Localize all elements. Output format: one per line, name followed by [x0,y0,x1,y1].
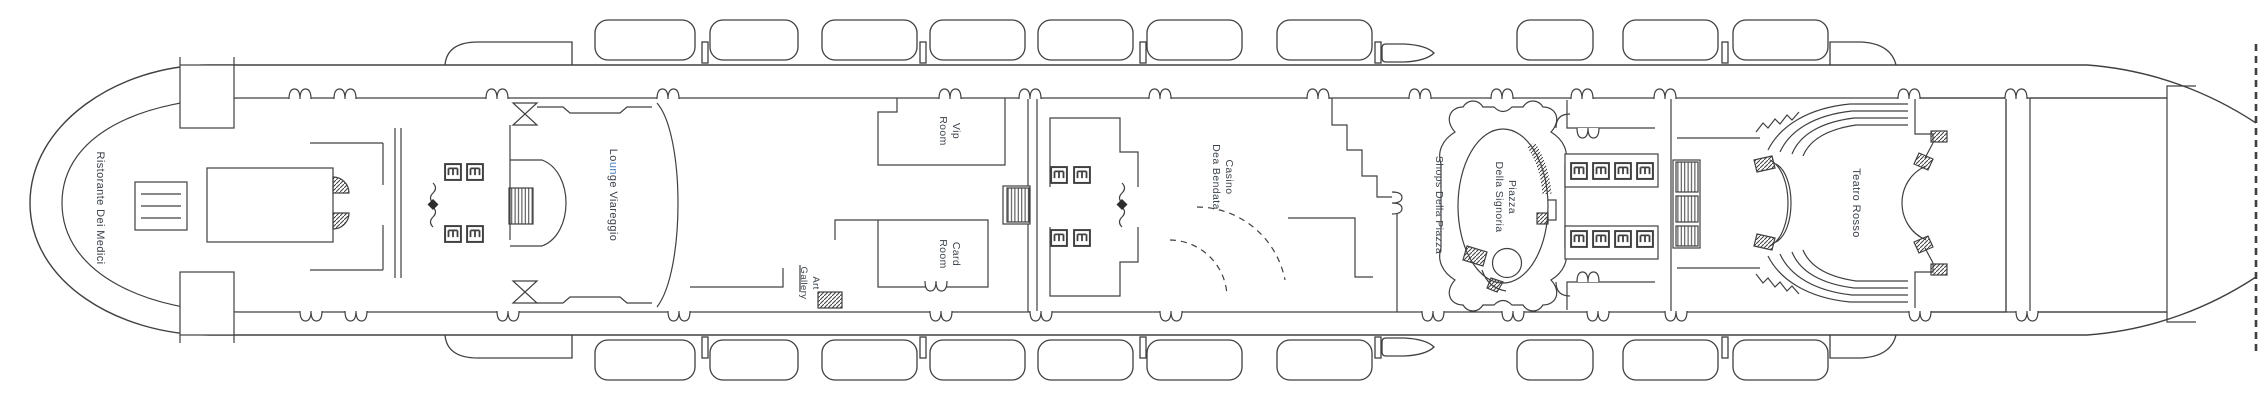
bow-curve-top [2087,65,2256,123]
elevator-icon [1637,231,1653,247]
label-casino-line2: Dea Bendata [1210,144,1222,210]
door-swing-arc [1556,114,1570,128]
balcony-front-arc [1770,160,1791,246]
elevator-icon [467,226,483,242]
lifeboat-icon [1517,20,1593,60]
lifeboat-icon [1038,340,1133,380]
forward-elevator-banks [1556,98,1671,312]
elevator-icon [1051,230,1067,246]
engine-casing-walls [395,128,401,278]
stage-apron-arc [1902,166,1926,240]
tender-boat-icon [1382,44,1434,62]
casino-dashed-arc [1197,207,1285,280]
elevator-icon [467,164,483,180]
rooms-vip-card [835,98,1037,312]
seating-tier-teeth-bottom [1756,274,1799,294]
stairs-hatch-icon [509,188,533,224]
tender-boat-icon [1382,338,1434,356]
theater-aisle-curves-bottom [1768,250,1908,302]
room-teatro-rosso [1673,98,1947,308]
door-swing-fan-icon [333,177,349,193]
davit-structure-aft-top [445,42,572,65]
room-labels: Ristorante Dei Medici Lounge Viareggio V… [94,116,1862,299]
hull-main [30,65,2087,335]
stairs-hatch-icon [1754,156,1775,172]
lifeboat-icon [930,340,1025,380]
door-swing-fan-icon [333,213,349,229]
elevator-icon [1571,231,1587,247]
lifeboat-icon [1623,20,1718,60]
stairs-hatch-icon [1676,196,1698,222]
fwd-room-top [1567,100,1655,128]
stairs-hatch-icon [1676,226,1698,246]
casino-stepped-wall [1332,98,1397,312]
stairs-hatch-icon [818,292,842,308]
stairs-hatch-icon [1676,162,1698,192]
art-gallery-walls [690,265,800,292]
card-room-walls [835,220,988,287]
stairs-hatch-icon [1007,188,1029,222]
elevator-icon [1615,163,1631,179]
lounge-bottom-wall [537,297,652,303]
elevator-icon [1593,163,1609,179]
lifeboat-icon [710,340,798,380]
elevator-icon [1615,231,1631,247]
label-lounge-viareggio: Lounge Viareggio [607,149,619,241]
bow-room-fwd [2030,98,2167,312]
label-piazza-line1: Piazza [1506,180,1518,214]
lifeboats-bottom-row [445,335,1896,380]
elevator-icon [1571,163,1587,179]
lifeboat-icon [930,20,1025,60]
restaurant-aft-walls [310,143,383,270]
elevator-icon [1051,167,1067,183]
lifeboat-icon [710,20,798,60]
stairs-hatch-icon [1931,264,1947,275]
room-ristorante-dei-medici [135,128,401,278]
davit-structure-fwd-top [1830,42,1896,65]
label-vip-room-line2: Room [937,116,949,146]
central-elevator-lobby [1050,118,1138,296]
bow-room-steps [2167,86,2196,322]
lifeboat-icon [595,20,695,60]
stairs-hatch-icon [1754,234,1775,250]
curtain-bowtie-icon [513,281,537,303]
stairs-hatch-icon [1537,213,1548,224]
curtain-bowtie-icon [513,103,537,125]
bow-curve-bottom [2087,277,2256,335]
lounge-curved-aft-wall [657,103,678,307]
lifeboat-icon [1733,20,1828,60]
bow-rooms [1915,86,2196,322]
stage-side-wall-bottom [1915,248,1933,308]
davit-structure-aft-bottom [445,335,572,358]
lifeboat-icon [822,340,917,380]
casino-dashed-arc [1170,240,1227,296]
room-casino-dea-bendata [1170,98,1397,312]
elevator-icon [1593,231,1609,247]
buffet-central-block [207,168,333,242]
watertight-door-diamond-icon [1117,183,1128,227]
elevator-icon [445,164,461,180]
buffet-side-counter-lines [141,194,181,218]
casino-bar-walls [1288,218,1373,277]
label-casino-line1: Casino [1223,159,1235,194]
lifeboat-icon [1147,20,1242,60]
elevator-icon [1074,230,1090,246]
aft-stair-elevator-cluster [428,103,567,303]
label-card-room-line1: Card [950,242,962,266]
label-piazza-line2: Della Signoria [1493,162,1505,233]
lifeboats-top-row [445,20,1896,65]
lifeboat-icon [1038,20,1133,60]
lifeboat-icon [1623,340,1718,380]
lifeboat-icon [822,20,917,60]
label-vip-room-line1: Vip [950,123,962,139]
seating-tier-teeth-top [1756,112,1799,132]
lifeboat-icon [1147,340,1242,380]
lifeboat-icon [1277,340,1372,380]
lounge-top-wall [537,107,652,113]
bow-corridor-walls [2006,98,2030,312]
fwd-room-bottom [1567,282,1655,310]
hull-outline [30,44,2256,356]
davit-structure-fwd-bottom [1830,335,1896,358]
stage-side-wall-top [1915,98,1933,158]
door-swing-arc [1556,282,1570,296]
label-ristorante-dei-medici: Ristorante Dei Medici [94,152,106,265]
theater-aisle-curves-top [1768,104,1908,156]
watertight-door-diamond-icon [428,183,439,227]
elevator-icon [1637,163,1653,179]
label-shops-della-piazza: Shops Della Piazza [1433,156,1445,254]
lifeboat-icon [1517,340,1593,380]
stern-block-top [180,65,234,128]
stern-block-bottom [180,272,234,335]
lifeboat-icon [1733,340,1828,380]
bow-room-aft [1915,98,2006,312]
elevator-icon [1074,167,1090,183]
label-art-gallery-line1: Art [810,276,821,289]
label-teatro-rosso: Teatro Rosso [1850,168,1862,238]
label-card-room-line2: Room [937,239,949,269]
stairs-hatch-icon [1931,131,1947,142]
lifeboat-icon [595,340,695,380]
elevator-icon [445,226,461,242]
deck-plan-canvas: Ristorante Dei Medici Lounge Viareggio V… [0,0,2267,400]
lifeboat-icon [1277,20,1372,60]
label-art-gallery-line2: Gallery [798,267,809,300]
